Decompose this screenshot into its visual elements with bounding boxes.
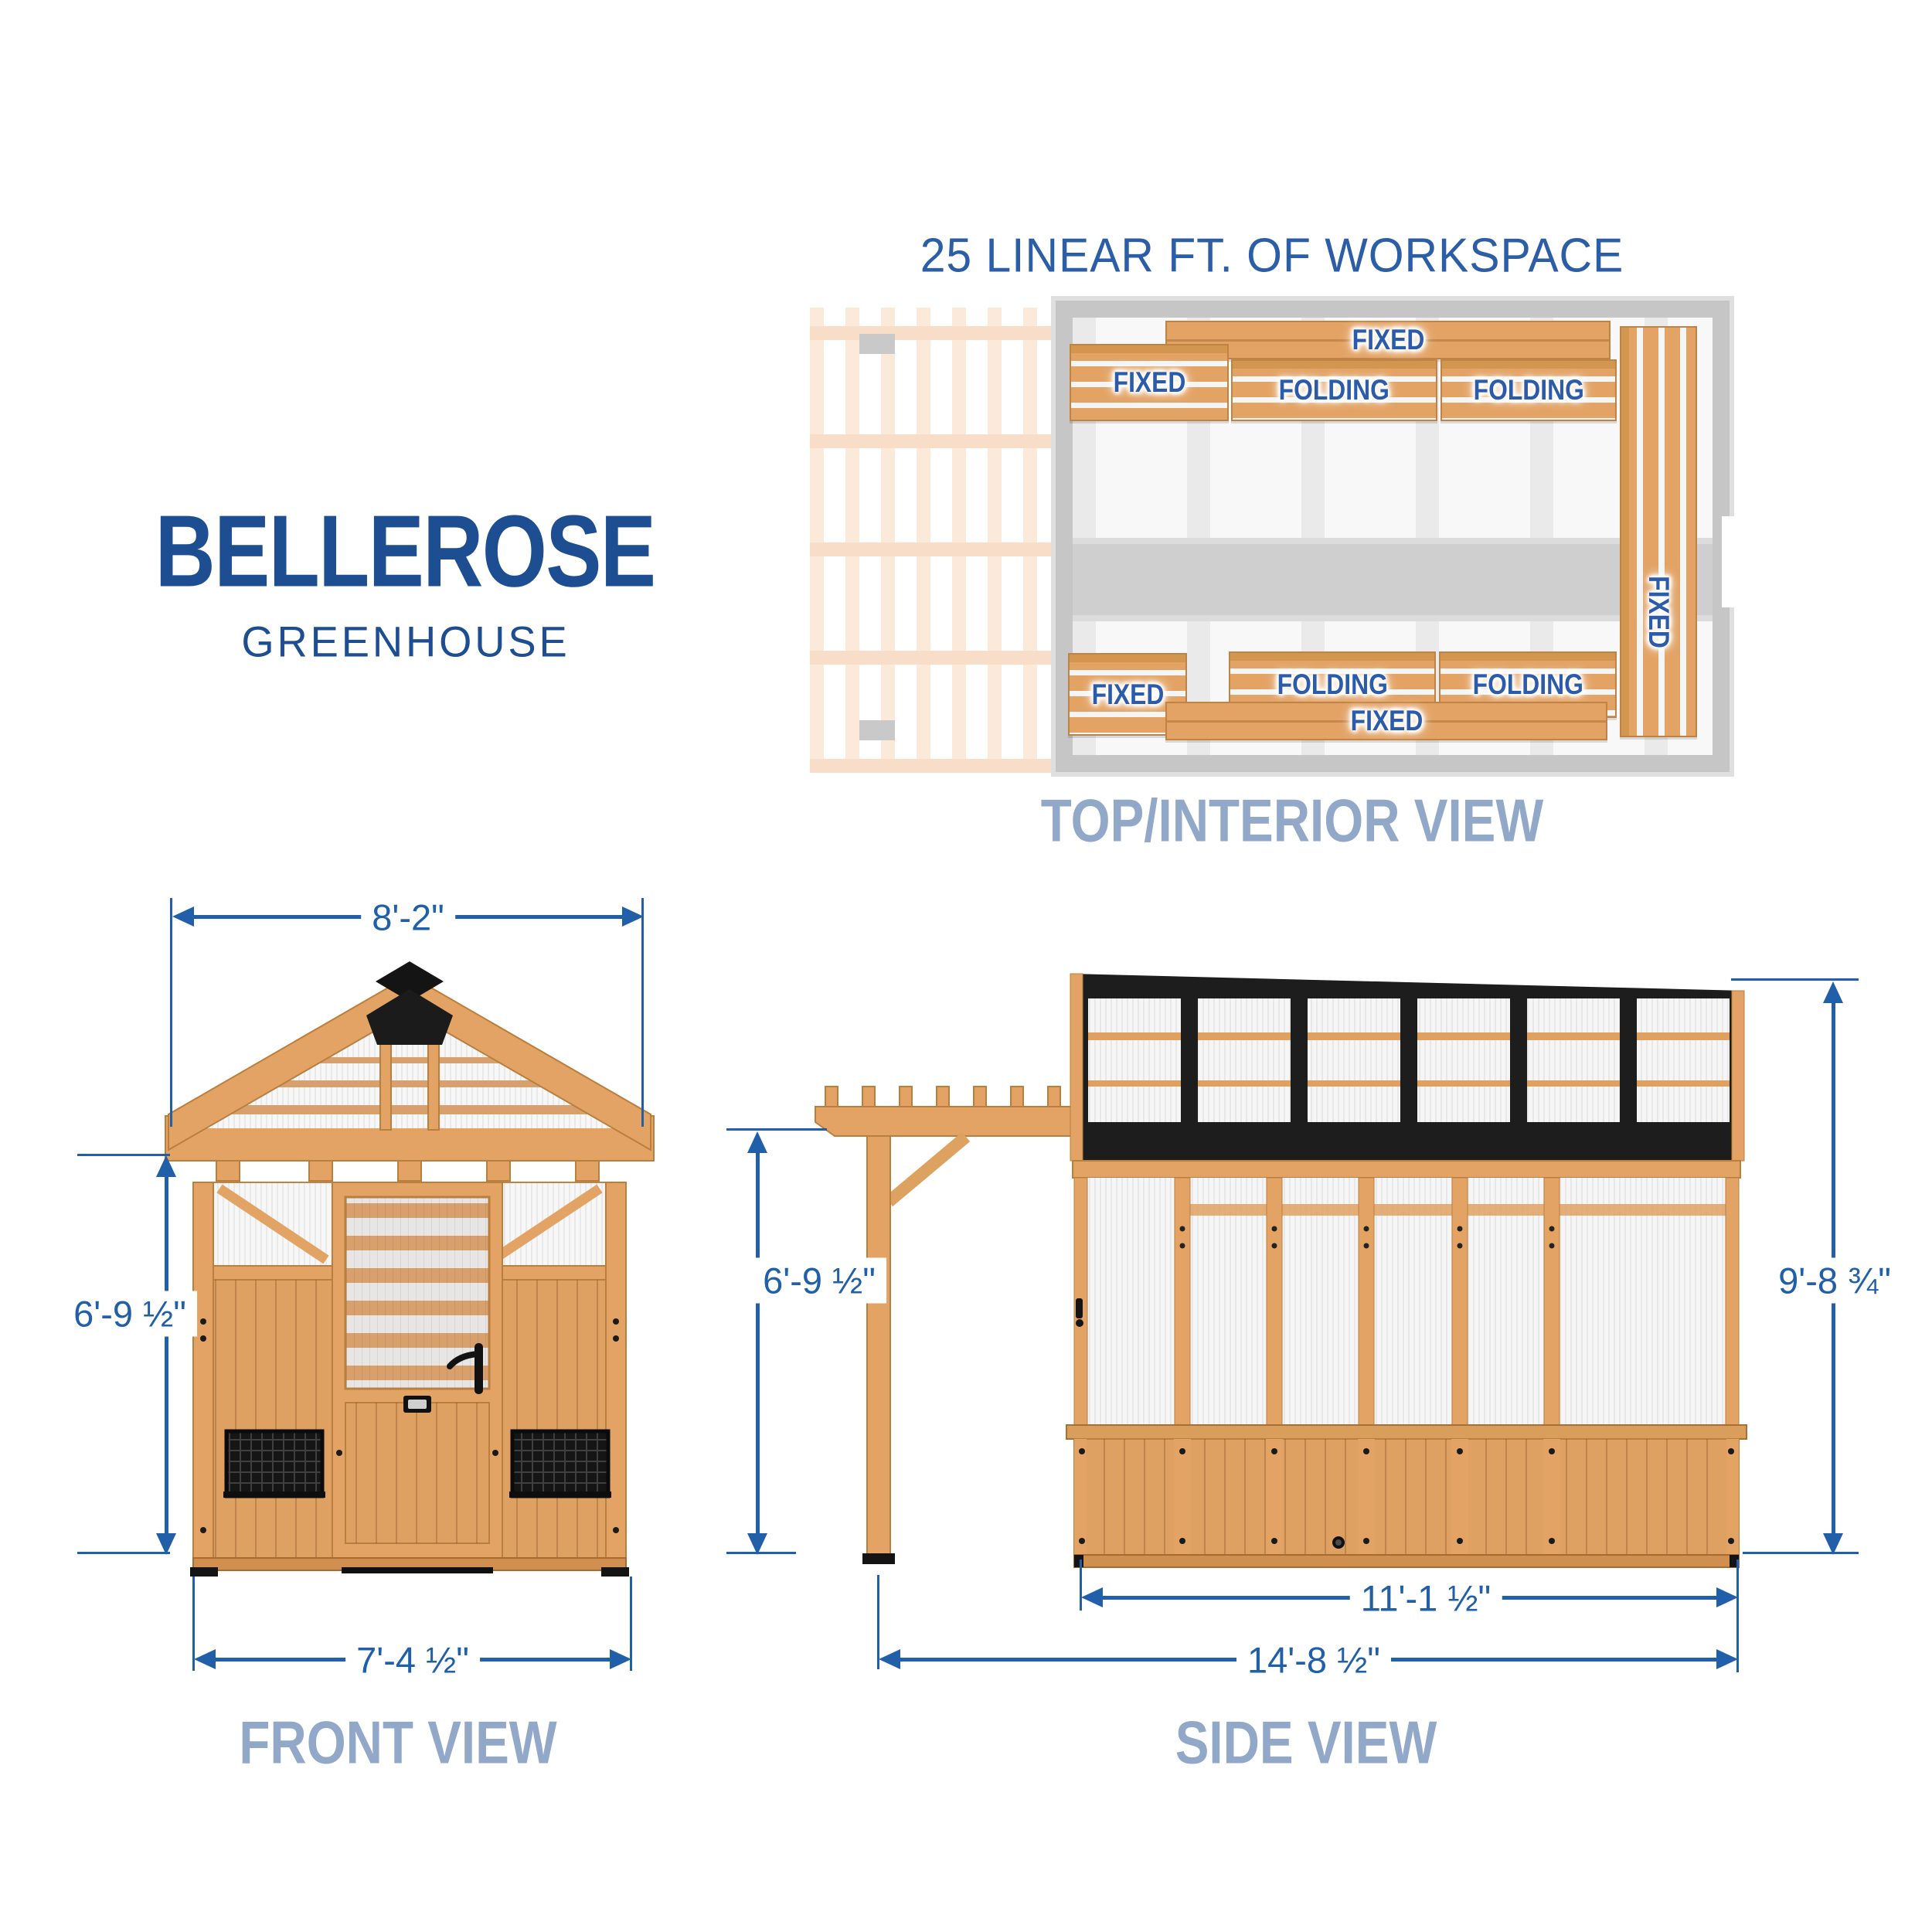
arrow-down-icon xyxy=(156,1533,176,1555)
front-view-drawing xyxy=(116,958,672,1577)
side-roof xyxy=(1070,974,1744,1161)
pergola-brace xyxy=(889,1137,966,1202)
arrow-down-icon xyxy=(747,1533,767,1555)
arrow-down-icon xyxy=(1823,1533,1843,1555)
pergola-lattice-topview xyxy=(810,308,1056,773)
bench-label: FOLDING xyxy=(1279,374,1389,406)
front-base-width-value: 7'-4 ½" xyxy=(345,1638,480,1683)
front-roof xyxy=(165,961,654,1181)
vent-right xyxy=(512,1431,608,1496)
arrow-up-icon xyxy=(1823,981,1843,1003)
front-height-value: 6'-9 ½" xyxy=(63,1291,197,1337)
side-view-caption: SIDE VIEW xyxy=(1150,1708,1461,1778)
bench-label: FIXED xyxy=(1352,324,1424,356)
bench-label: FOLDING xyxy=(1472,668,1583,701)
arrow-right-icon xyxy=(610,1649,631,1669)
side-total-length-value: 14'-8 ½" xyxy=(1236,1638,1391,1683)
bench-label: FIXED xyxy=(1091,679,1164,711)
arrow-up-icon xyxy=(156,1155,176,1177)
front-door xyxy=(332,1182,502,1558)
brand-title: BELLEROSE xyxy=(100,493,710,610)
workspace-heading: 25 LINEAR FT. OF WORKSPACE xyxy=(902,229,1642,284)
lattice-bracket xyxy=(859,334,895,354)
side-house-length-value: 11'-1 ½" xyxy=(1350,1576,1502,1621)
arrow-left-icon xyxy=(194,1649,216,1669)
pergola-post xyxy=(867,1136,890,1558)
product-dimension-diagram: BELLEROSE GREENHOUSE 25 LINEAR FT. OF WO… xyxy=(0,0,1932,1932)
base-skid xyxy=(1074,1555,1739,1567)
center-walkway xyxy=(1073,538,1713,621)
arrow-left-icon xyxy=(879,1649,900,1669)
bench-label: FIXED xyxy=(1642,576,1675,648)
pergola-beam xyxy=(815,1107,1086,1136)
brand-subtitle-text: GREENHOUSE xyxy=(241,617,570,667)
vent-left xyxy=(226,1431,322,1496)
side-wainscot xyxy=(1066,1425,1747,1567)
bench-bottom-long-fixed: FIXED xyxy=(1165,702,1607,740)
bench-row-folding-2: FOLDING xyxy=(1440,359,1617,421)
arrow-left-icon xyxy=(172,906,194,927)
arrow-right-icon xyxy=(622,906,644,927)
pergola xyxy=(815,1087,1086,1564)
front-view-caption: FRONT VIEW xyxy=(209,1708,587,1778)
bench-label: FOLDING xyxy=(1277,668,1387,701)
arrow-right-icon xyxy=(1716,1649,1738,1669)
bench-row-folding-1: FOLDING xyxy=(1231,359,1437,421)
door-window xyxy=(345,1197,489,1389)
corner-post-left xyxy=(193,1182,213,1558)
corner-post-right xyxy=(606,1182,626,1558)
arrow-left-icon xyxy=(1081,1587,1103,1607)
bench-row-fixed: FIXED xyxy=(1070,344,1229,421)
bench-label: FOLDING xyxy=(1473,374,1583,406)
arrow-right-icon xyxy=(1716,1587,1738,1607)
bench-right-vertical-fixed: FIXED xyxy=(1620,326,1697,737)
side-pergola-height-value: 6'-9 ½" xyxy=(752,1258,886,1304)
door-handle xyxy=(474,1343,483,1394)
side-view-drawing xyxy=(804,958,1754,1577)
brand-title-text: BELLEROSE xyxy=(155,493,655,610)
arrow-up-icon xyxy=(747,1131,767,1153)
side-total-height-value: 9'-8 ¾" xyxy=(1767,1258,1902,1304)
brand-subtitle: GREENHOUSE xyxy=(236,617,575,667)
top-view-caption: TOP/INTERIOR VIEW xyxy=(993,786,1591,856)
door-opening-topview xyxy=(1722,516,1734,607)
bench-label: FIXED xyxy=(1350,705,1423,737)
lattice-bracket xyxy=(859,720,895,740)
front-base xyxy=(190,1558,629,1577)
side-door-handle xyxy=(1076,1298,1083,1318)
side-wall xyxy=(1073,1161,1740,1425)
front-width-value: 8'-2" xyxy=(361,895,455,940)
bench-label: FIXED xyxy=(1113,366,1185,399)
bench-top-long-fixed: FIXED xyxy=(1165,321,1611,359)
